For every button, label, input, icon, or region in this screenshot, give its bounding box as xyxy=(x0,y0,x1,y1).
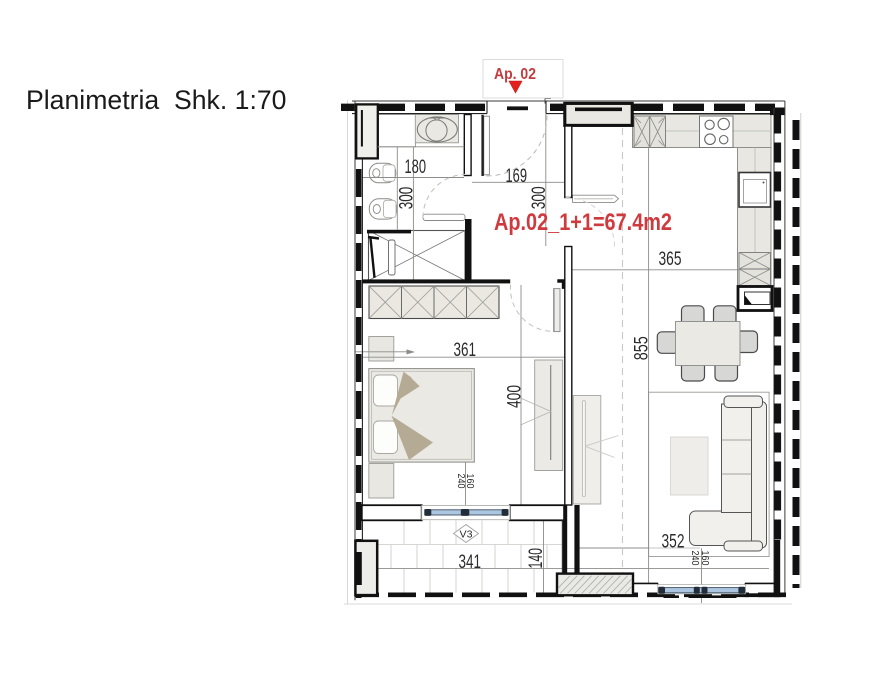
svg-text:V3: V3 xyxy=(460,528,473,540)
svg-text:300: 300 xyxy=(396,187,418,210)
svg-text:400: 400 xyxy=(503,385,525,408)
svg-text:Ap.02_1+1=67.4m2: Ap.02_1+1=67.4m2 xyxy=(494,209,672,236)
svg-text:Ap. 02: Ap. 02 xyxy=(494,66,536,83)
svg-text:160: 160 xyxy=(464,474,475,489)
svg-text:365: 365 xyxy=(659,248,682,270)
svg-text:240: 240 xyxy=(689,551,700,566)
svg-text:361: 361 xyxy=(454,339,477,361)
svg-text:300: 300 xyxy=(528,186,550,209)
svg-text:Planimetria Shk. 1:70: Planimetria Shk. 1:70 xyxy=(26,85,287,115)
svg-text:855: 855 xyxy=(631,336,653,360)
svg-text:352: 352 xyxy=(662,531,685,553)
svg-text:180: 180 xyxy=(405,156,427,178)
svg-text:341: 341 xyxy=(459,551,482,573)
svg-text:140: 140 xyxy=(525,548,547,569)
svg-text:160: 160 xyxy=(699,551,710,566)
